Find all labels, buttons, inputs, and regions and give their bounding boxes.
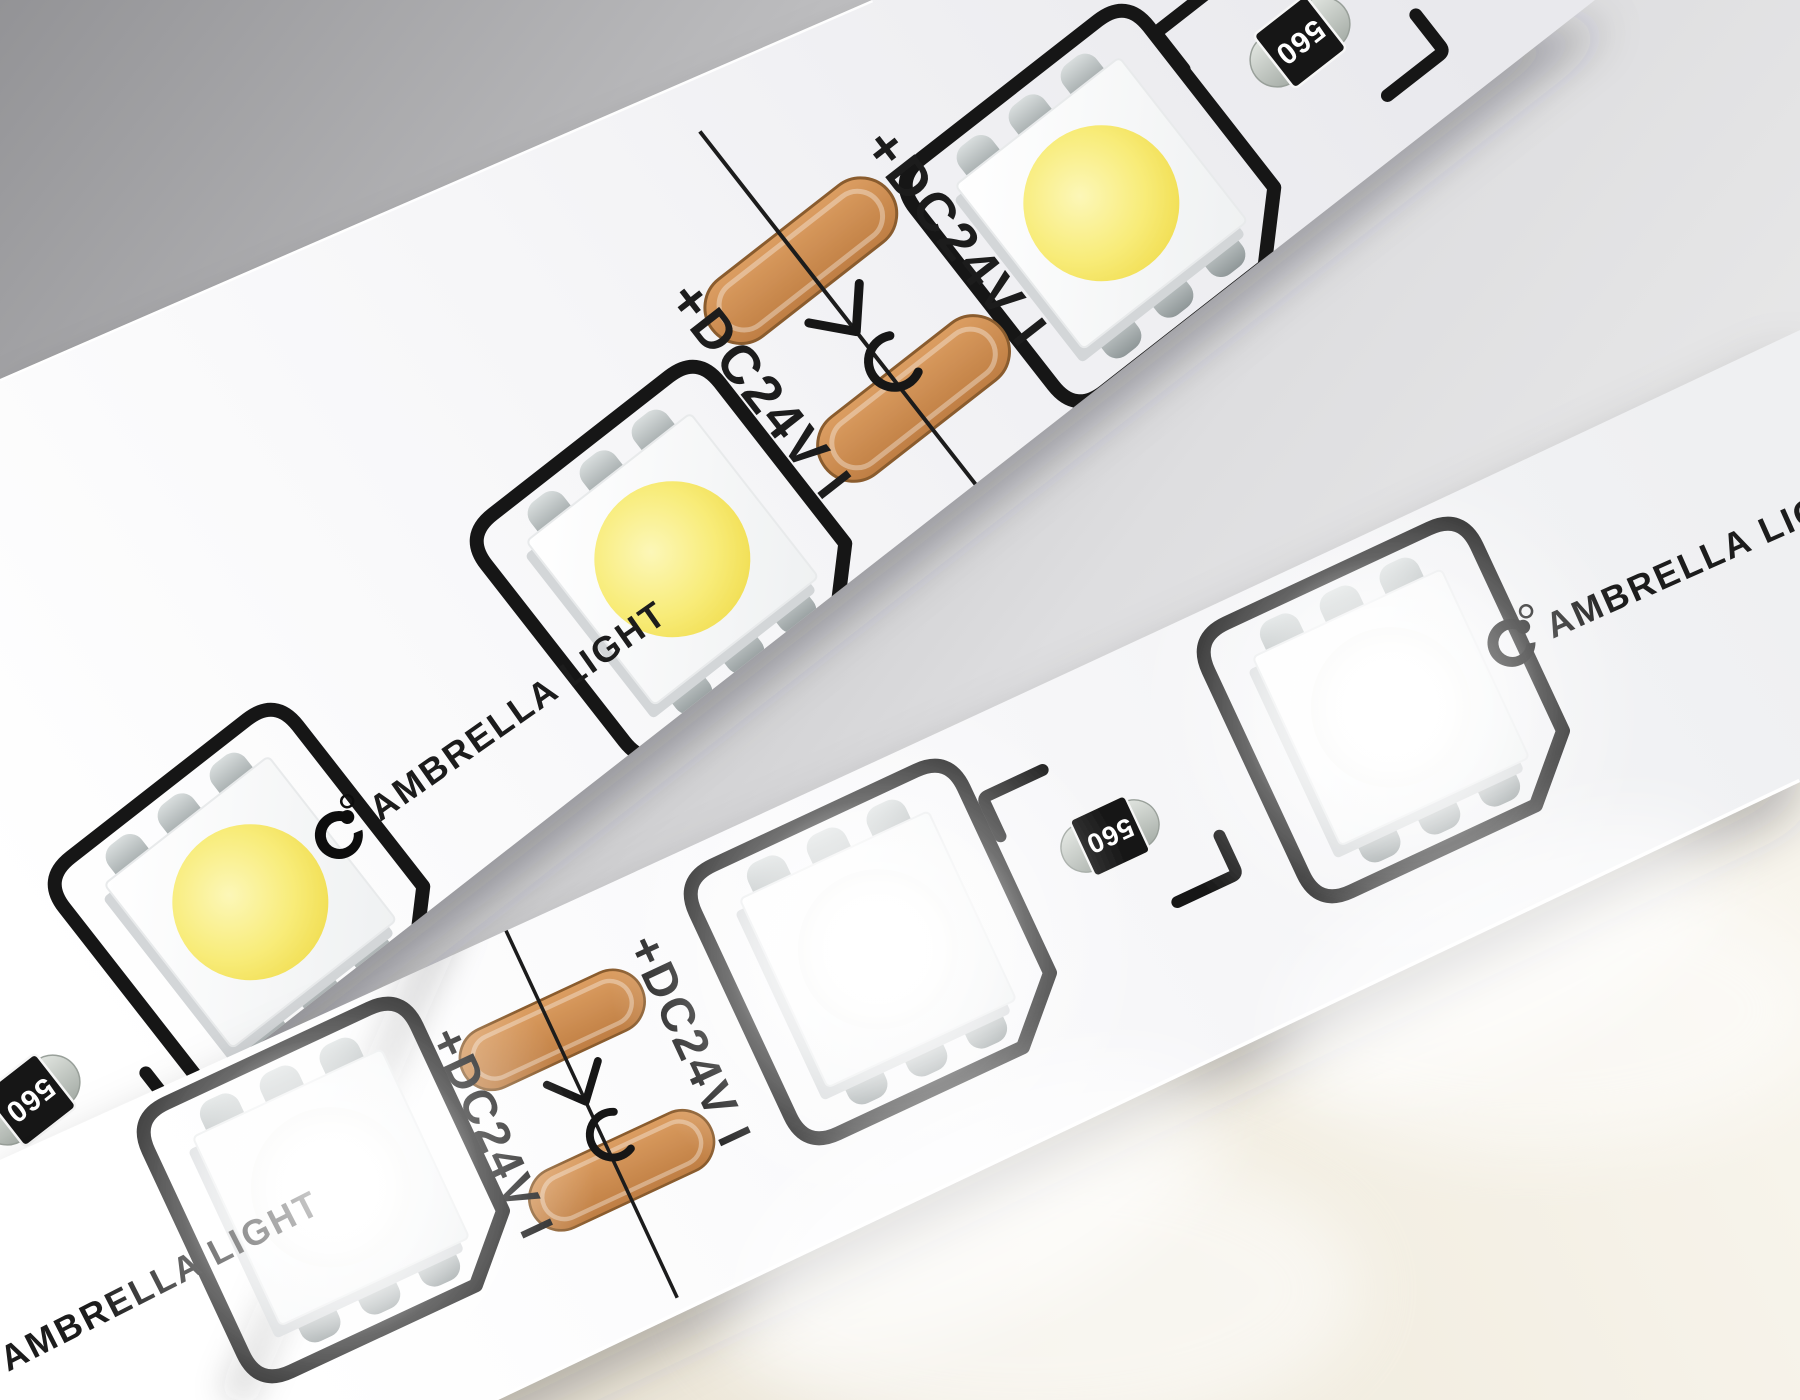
product-photo: 560 +DC24V I +DC24V I — [0, 0, 1800, 1400]
led-strip-scene: 560 +DC24V I +DC24V I — [0, 0, 1800, 1400]
